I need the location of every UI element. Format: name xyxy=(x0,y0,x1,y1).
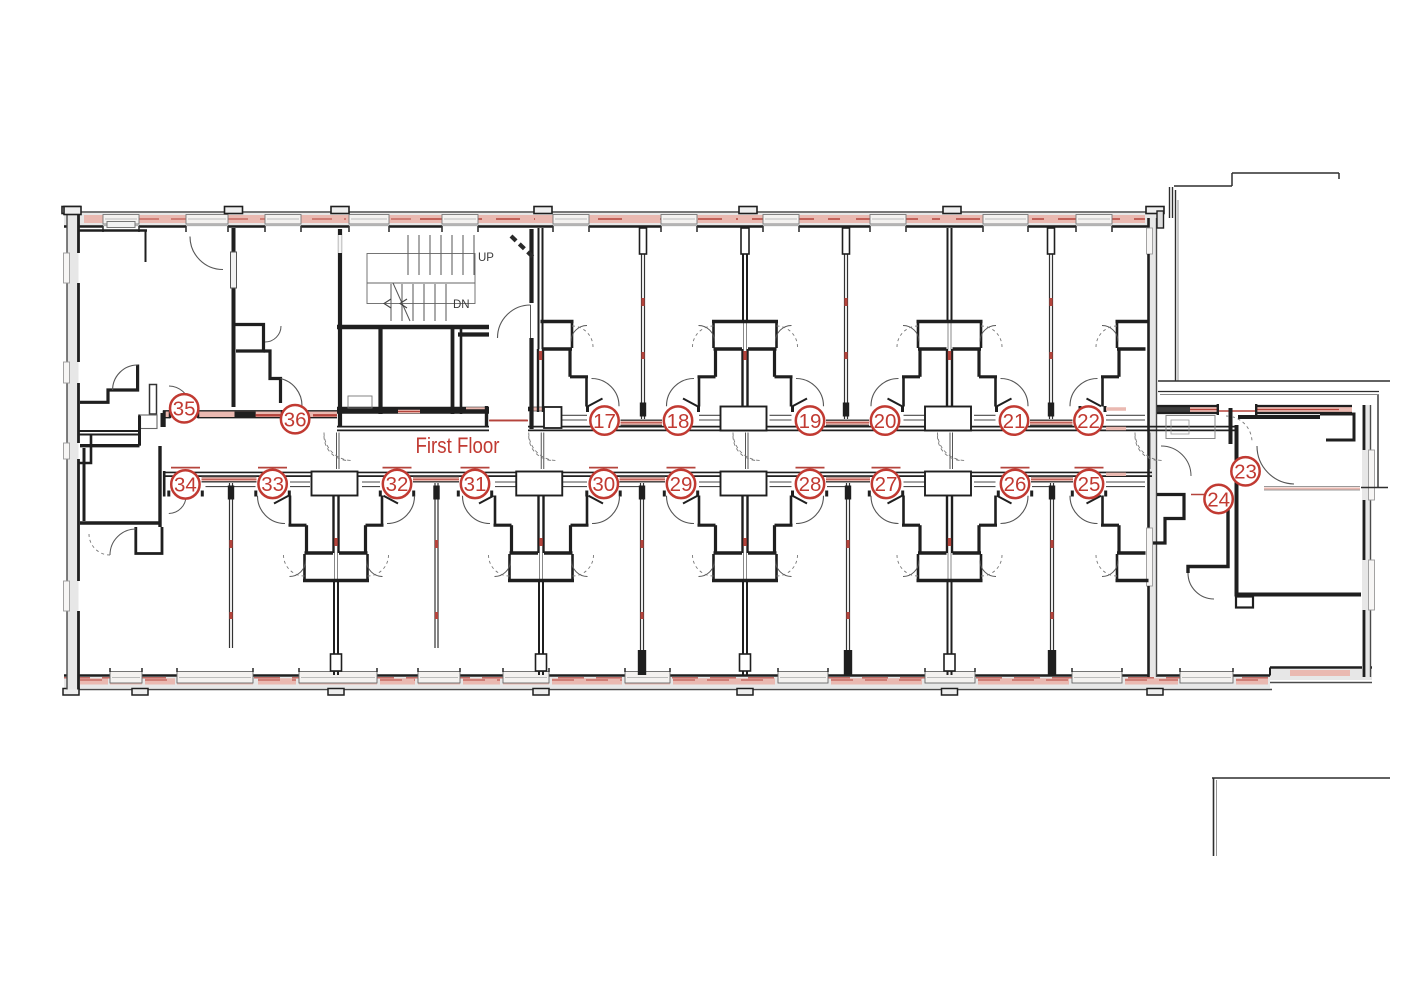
svg-text:19: 19 xyxy=(799,410,822,433)
svg-text:29: 29 xyxy=(670,473,693,496)
svg-text:25: 25 xyxy=(1078,473,1101,496)
svg-text:35: 35 xyxy=(173,398,196,421)
svg-text:18: 18 xyxy=(667,410,690,433)
svg-text:DN: DN xyxy=(453,299,470,311)
svg-text:26: 26 xyxy=(1004,473,1027,496)
svg-text:24: 24 xyxy=(1207,488,1230,511)
svg-text:20: 20 xyxy=(874,410,897,433)
svg-text:28: 28 xyxy=(799,473,822,496)
svg-text:22: 22 xyxy=(1077,410,1100,433)
svg-text:36: 36 xyxy=(284,409,307,432)
svg-text:27: 27 xyxy=(875,473,898,496)
svg-text:33: 33 xyxy=(261,473,284,496)
svg-text:UP: UP xyxy=(478,252,494,264)
svg-text:First Floor: First Floor xyxy=(416,433,500,458)
svg-text:34: 34 xyxy=(174,474,197,497)
svg-text:17: 17 xyxy=(593,410,616,433)
svg-text:21: 21 xyxy=(1003,410,1026,433)
svg-text:23: 23 xyxy=(1234,461,1257,484)
svg-text:30: 30 xyxy=(592,473,615,496)
svg-text:31: 31 xyxy=(464,473,487,496)
svg-text:32: 32 xyxy=(386,473,409,496)
